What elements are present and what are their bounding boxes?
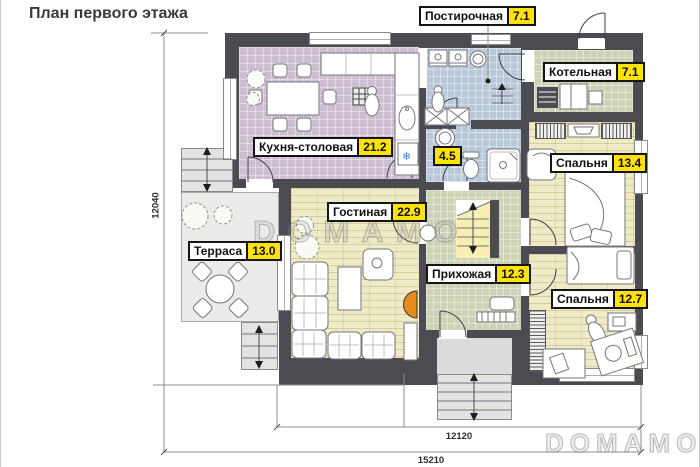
opening-entry-door [439,330,467,339]
bedroom1-floor [529,122,635,246]
room-name-bedroom2: Спальня [551,289,615,309]
watermark-corner: DOMAMO [545,428,700,459]
room-label-bathroom: 4.5 [433,146,462,166]
opening-kitchen-laundry [418,48,427,88]
room-label-hallway: Прихожая 12.3 [426,264,531,284]
opening-boiler-door [578,38,605,49]
opening-kitchen-terrace [246,179,273,189]
dimension-width-inner: 12120 [429,431,489,442]
wall-bath-divider2 [471,120,521,129]
room-area-boiler: 7.1 [618,62,645,82]
wall-bath-divider [426,120,456,129]
page-title: План первого этажа [29,5,188,23]
room-label-bedroom2: Спальня 12.7 [551,289,648,309]
window-laundry-top [471,34,511,45]
entry-steps [437,374,512,420]
window-kitchen-left [223,78,237,160]
room-name-hallway: Прихожая [426,264,497,284]
room-area-bedroom2: 12.7 [615,289,648,309]
room-name-terrace: Терраса [188,241,248,261]
opening-bath-hall [444,182,469,191]
opening-bedroom1-door [521,218,529,246]
room-name-boiler: Котельная [543,62,618,82]
room-area-living: 22.9 [393,202,426,222]
window-kitchen-top [309,32,391,45]
dimension-width-total: 15210 [401,455,461,466]
room-area-bathroom: 4.5 [433,146,462,166]
wall-stair-side [490,200,499,258]
room-area-kitchen: 21.2 [359,137,392,157]
room-name-kitchen: Кухня-столовая [253,137,359,157]
room-area-bedroom1: 13.4 [614,153,647,173]
kitchen-floor [239,47,419,179]
room-label-laundry: Постирочная 7.1 [419,6,536,26]
room-label-kitchen: Кухня-столовая 21.2 [253,137,393,157]
floor-plan-canvas: План первого этажа [0,0,700,467]
room-name-living: Гостиная [327,202,393,222]
room-label-living: Гостиная 22.9 [327,202,427,222]
window-bedroom2-bottom [559,368,635,382]
room-label-boiler: Котельная 7.1 [543,62,645,82]
bedroom1-wardrobe-right [601,123,632,139]
bedroom2-wardrobe [529,310,546,372]
room-area-hallway: 12.3 [497,264,530,284]
room-name-bedroom1: Спальня [550,153,614,173]
opening-laundry-boiler [522,50,534,82]
room-area-terrace: 13.0 [248,241,281,261]
dimension-height: 12040 [151,176,162,236]
garden-steps [241,322,278,370]
room-name-laundry: Постирочная [419,6,509,26]
window-bedroom2-right [634,335,648,369]
room-area-laundry: 7.1 [509,6,536,26]
bedroom1-wardrobe-left [535,123,566,139]
entry-porch [437,338,512,374]
room-label-terrace: Терраса 13.0 [188,241,282,261]
room-label-bedroom1: Спальня 13.4 [550,153,647,173]
